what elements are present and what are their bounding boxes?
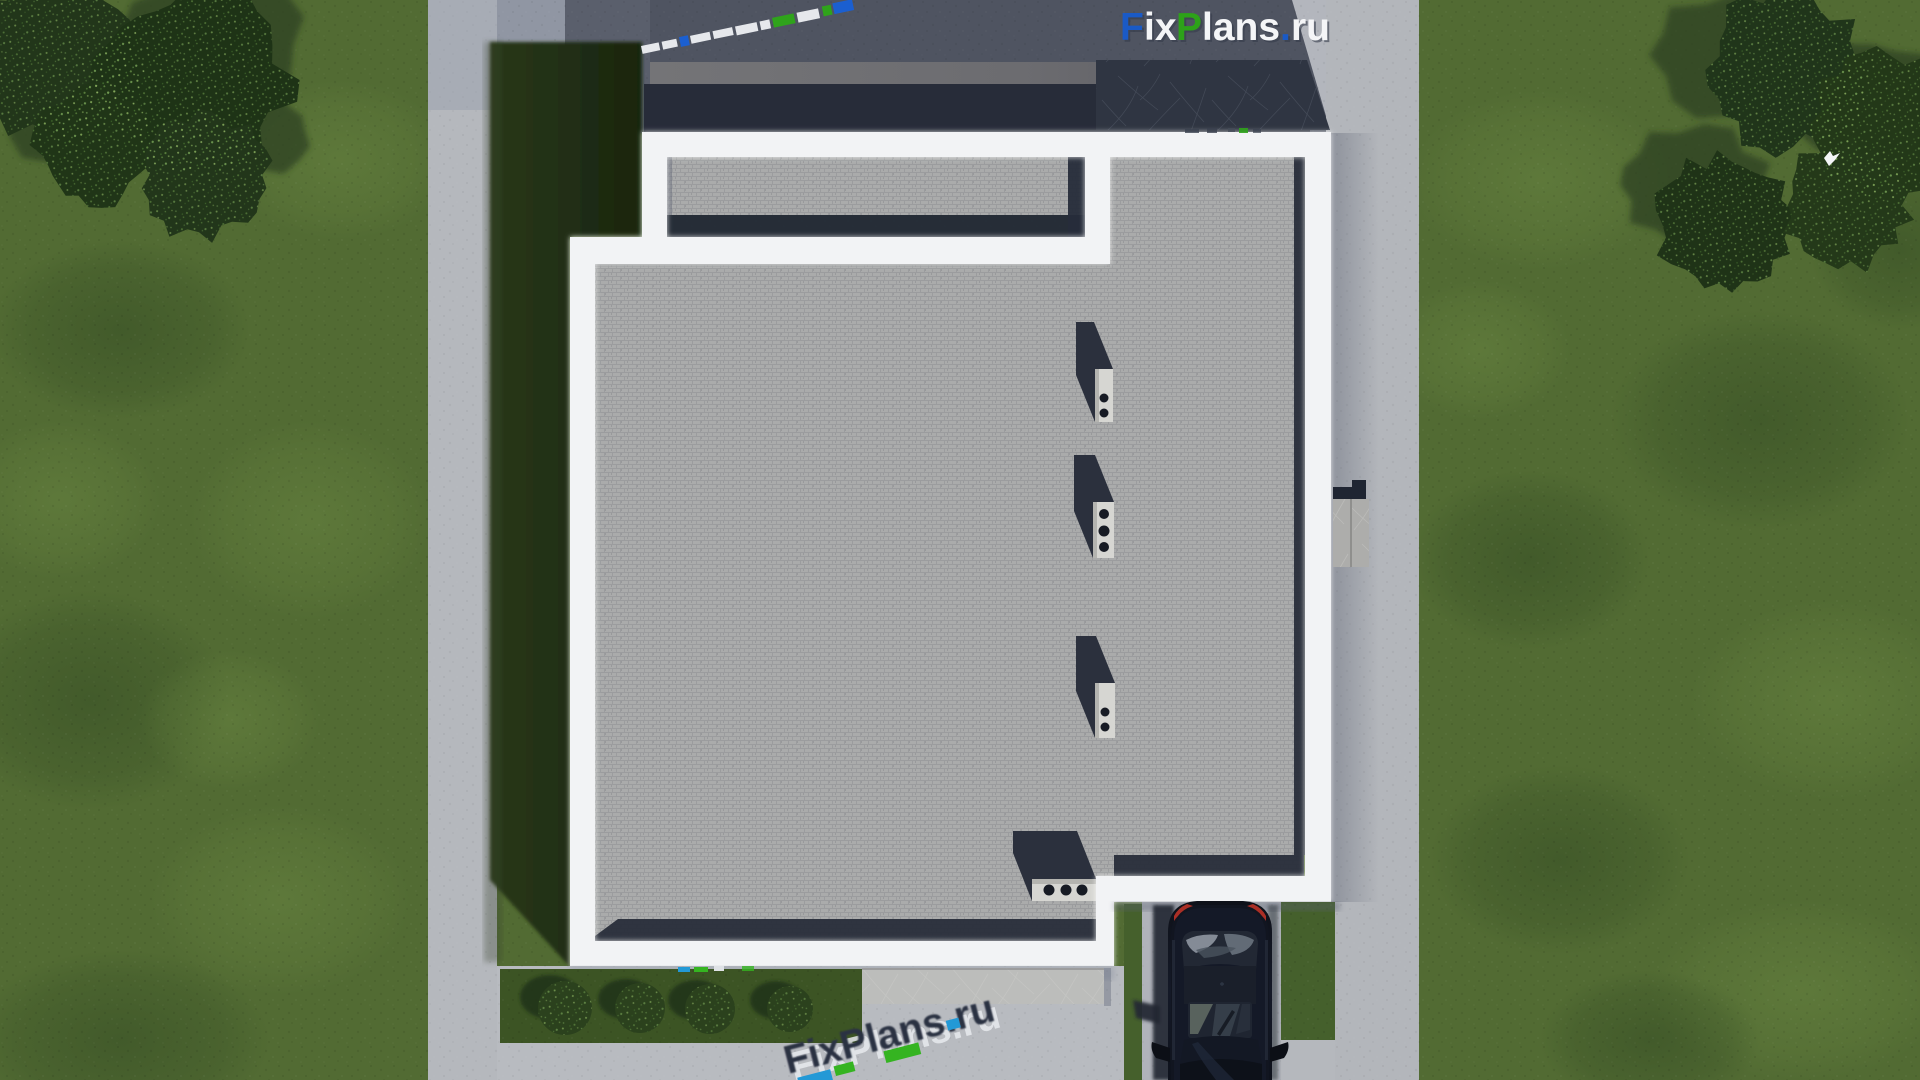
- svg-text:ix: ix: [1144, 6, 1177, 49]
- svg-text:.: .: [1280, 6, 1291, 49]
- svg-text:P: P: [1176, 6, 1202, 49]
- svg-text:lans: lans: [1202, 6, 1280, 49]
- svg-text:F: F: [1120, 6, 1144, 49]
- svg-text:ru: ru: [1291, 6, 1330, 49]
